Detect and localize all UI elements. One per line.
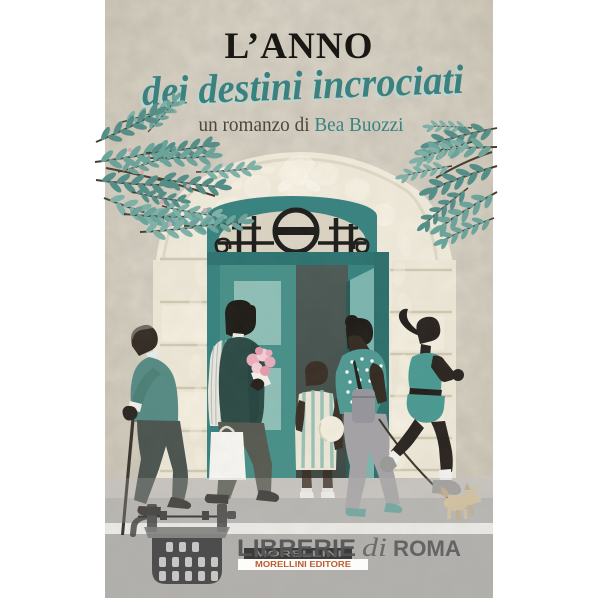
- svg-text:di: di: [362, 533, 387, 562]
- svg-text:LIBRERIE: LIBRERIE: [237, 535, 356, 562]
- svg-text:ROMA: ROMA: [393, 536, 461, 561]
